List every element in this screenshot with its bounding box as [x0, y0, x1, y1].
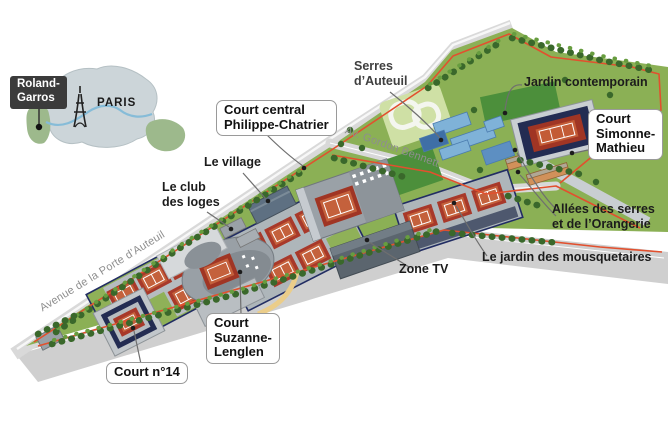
label-court-14: Court n°14	[106, 362, 188, 384]
label-court-simonne-mathieu: Court Simonne- Mathieu	[588, 109, 663, 160]
paris-city-label: PARIS	[97, 97, 136, 109]
label-club-des-loges: Le club des loges	[162, 180, 220, 209]
label-zone-tv: Zone TV	[399, 262, 448, 277]
roland-garros-inset-label: Roland- Garros	[10, 76, 67, 109]
roland-garros-location-dot	[36, 124, 42, 130]
label-court-suzanne-lenglen: Court Suzanne- Lenglen	[206, 313, 280, 364]
label-serres-auteuil: Serres d’Auteuil	[354, 59, 407, 88]
label-allees-serres-orangerie: Allées des serres et de l’Orangerie	[552, 202, 655, 231]
bois-de-vincennes-shape	[146, 119, 185, 151]
label-jardin-mousquetaires: Le jardin des mousquetaires	[482, 250, 652, 265]
label-jardin-contemporain: Jardin contemporain	[524, 75, 648, 90]
label-court-philippe-chatrier: Court central Philippe-Chatrier	[216, 100, 337, 136]
roland-garros-map-infographic: Avenue de la Porte d’Auteuil Av. Gordon …	[0, 0, 668, 427]
label-le-village: Le village	[204, 155, 261, 170]
